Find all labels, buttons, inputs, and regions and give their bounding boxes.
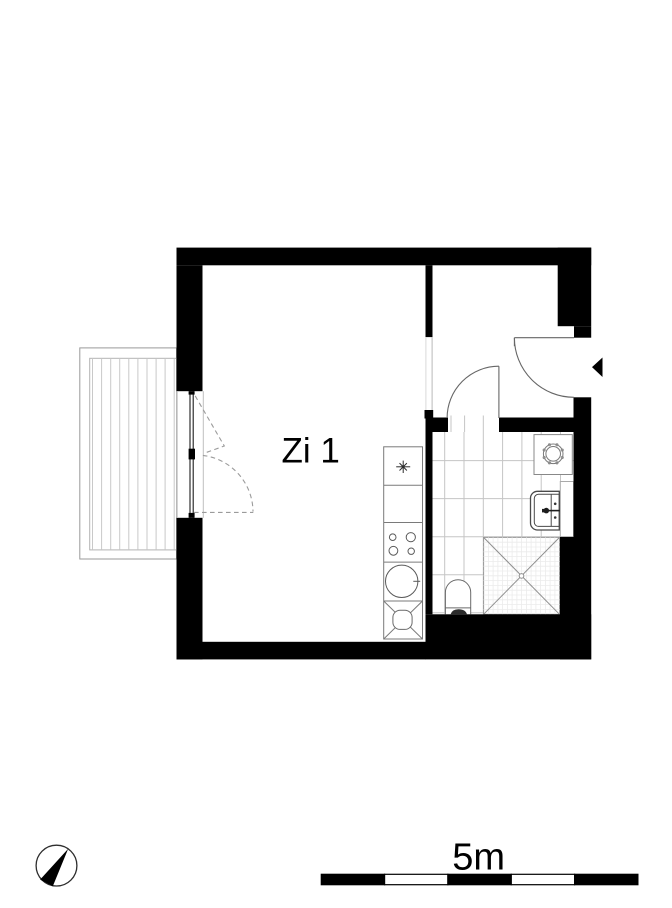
svg-text:5m: 5m xyxy=(452,836,505,878)
svg-text:Zi 1: Zi 1 xyxy=(282,432,340,471)
